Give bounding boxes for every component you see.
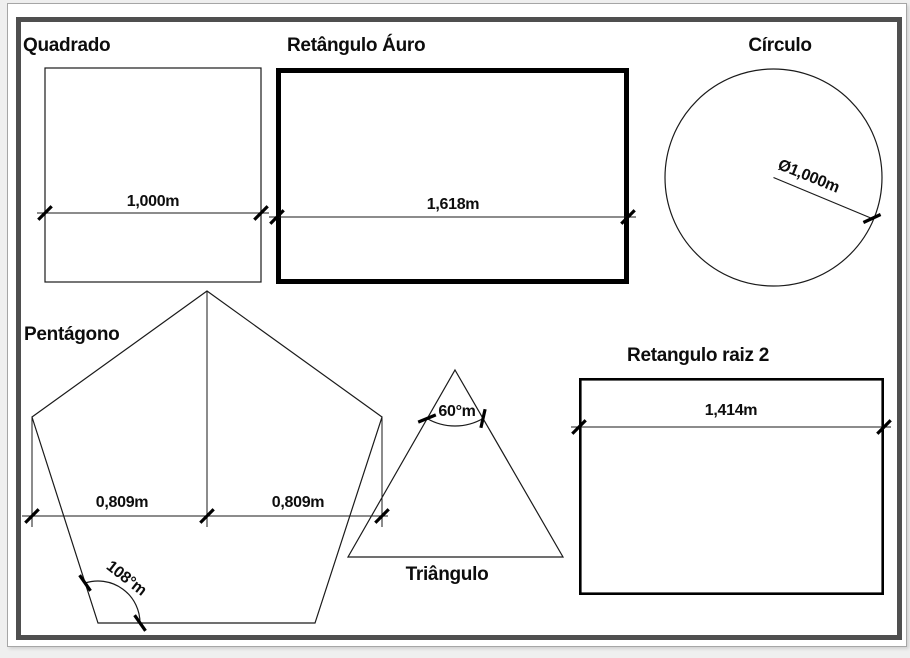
golden-rectangle-title: Retângulo Áuro <box>287 35 425 57</box>
square-title: Quadrado <box>23 35 110 57</box>
root2-rectangle-width-dimension-label: 1,414m <box>705 402 757 420</box>
pentagon-left-half-dimension-label: 0,809m <box>96 494 148 512</box>
square-width-dimension-label: 1,000m <box>127 193 179 211</box>
golden-rectangle-width-dimension-label: 1,618m <box>427 196 479 214</box>
pentagon-title: Pentágono <box>24 324 119 346</box>
pentagon-right-half-dimension-label: 0,809m <box>272 494 324 512</box>
circle-title: Círculo <box>748 35 811 57</box>
triangle-title: Triângulo <box>406 564 489 586</box>
drawing-frame <box>16 17 902 640</box>
triangle-angle-dimension-label: 60°m <box>438 403 475 421</box>
root2-rectangle-title: Retangulo raiz 2 <box>627 345 769 367</box>
